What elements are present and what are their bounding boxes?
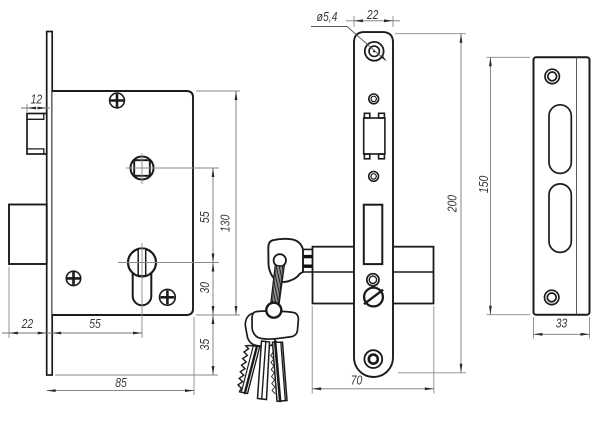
svg-text:33: 33 <box>556 317 568 331</box>
svg-text:85: 85 <box>115 376 127 390</box>
svg-text:12: 12 <box>31 93 43 107</box>
svg-text:22: 22 <box>366 8 379 22</box>
svg-text:150: 150 <box>477 175 491 193</box>
svg-text:ø5,4: ø5,4 <box>317 10 338 24</box>
svg-text:22: 22 <box>21 317 34 331</box>
svg-text:130: 130 <box>219 214 233 232</box>
svg-text:55: 55 <box>198 211 212 223</box>
svg-text:200: 200 <box>445 195 459 214</box>
svg-text:30: 30 <box>198 282 212 294</box>
svg-text:35: 35 <box>198 338 212 350</box>
svg-text:55: 55 <box>89 317 101 331</box>
svg-text:70: 70 <box>351 373 363 387</box>
